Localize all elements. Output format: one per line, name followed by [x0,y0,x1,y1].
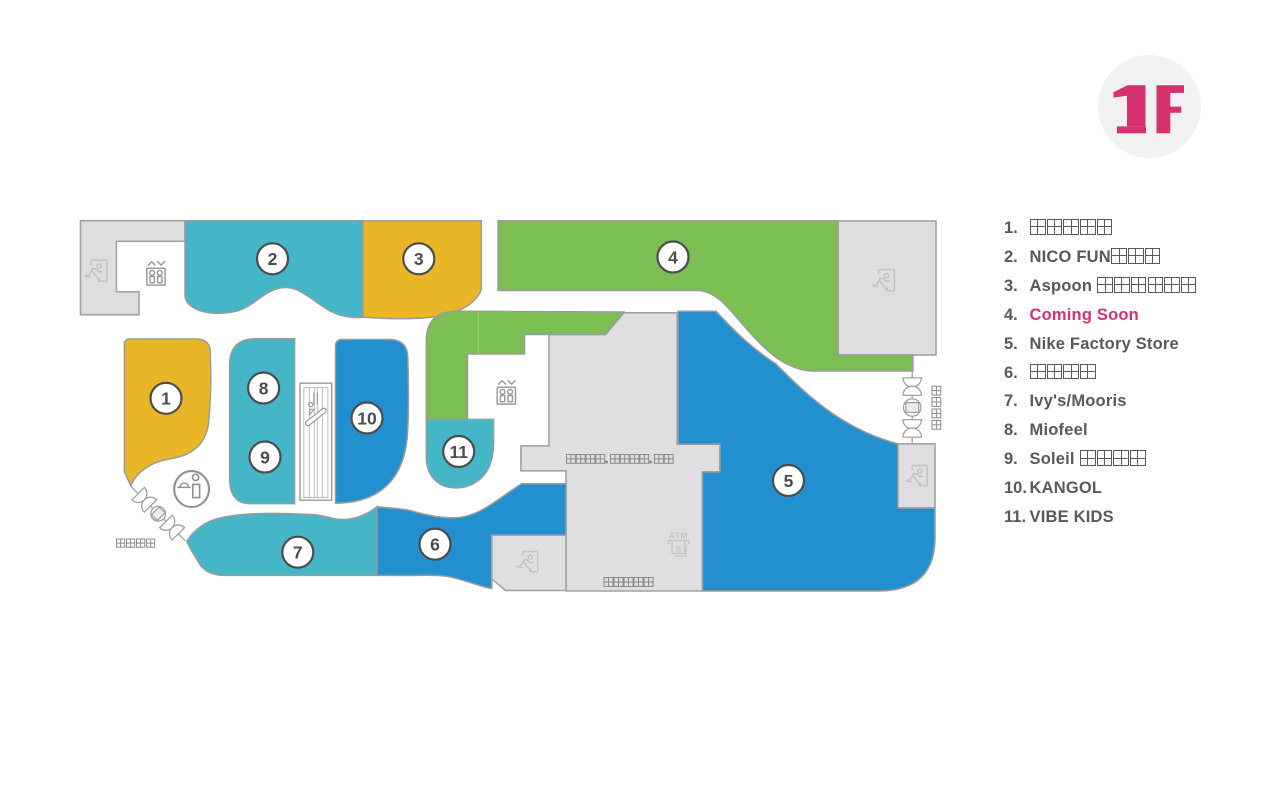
svg-text:3: 3 [414,249,424,269]
svg-text:6: 6 [430,535,440,555]
svg-text:ATM: ATM [669,531,688,541]
svg-text:9: 9 [260,447,270,467]
svg-text:10: 10 [357,408,377,428]
svg-text:7: 7 [293,543,303,563]
svg-text:11: 11 [449,442,468,462]
svg-text:$: $ [676,545,682,556]
svg-text:2: 2 [268,249,278,269]
svg-text:1: 1 [161,389,171,409]
svg-text:4: 4 [668,247,678,267]
svg-text:5: 5 [784,471,794,491]
svg-text:8: 8 [259,378,269,398]
